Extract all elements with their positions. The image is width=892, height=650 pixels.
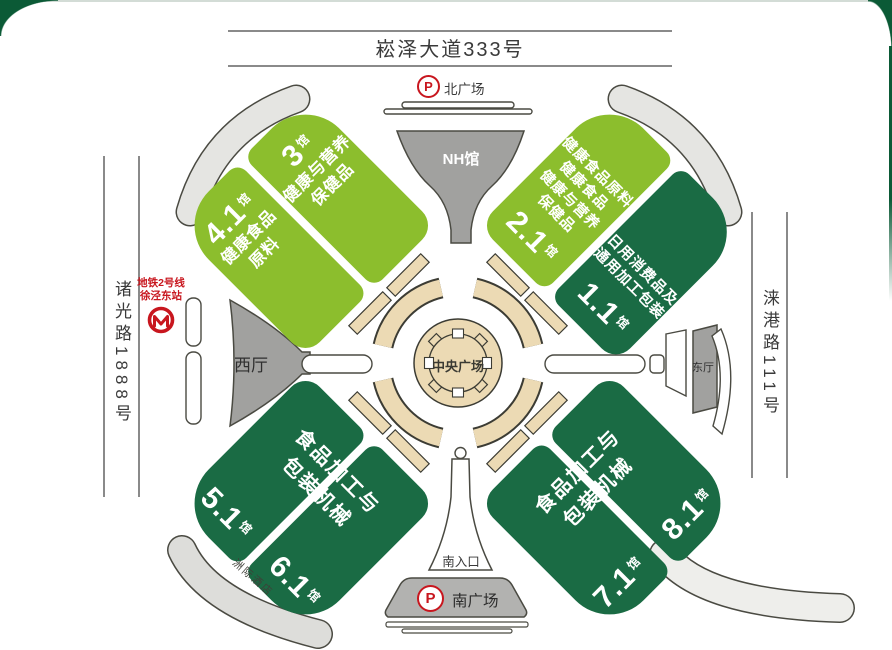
frame-corner-top-left [0, 0, 58, 36]
west-hall-label: 西厅 [224, 351, 278, 376]
north-walkway-bars [384, 102, 532, 114]
central-plaza-label: 中央广场 [418, 356, 498, 375]
venue-map: 4.1馆 健康食品 原料 3馆 健康与营养 保健品 健康食品原料 健康食品 健康… [0, 0, 892, 650]
shanghai-metro-icon [146, 305, 176, 335]
south-parking-icon: P [417, 585, 444, 612]
south-plaza-label: 南广场 [452, 589, 499, 611]
north-parking-icon: P [417, 75, 440, 98]
frame-top-hairline [0, 0, 892, 2]
metro-station-label: 地铁2号线 徐泾东站 [130, 277, 192, 303]
south-entrance-label: 南入口 [430, 551, 492, 570]
nh-hall-label: NH馆 [430, 148, 492, 169]
east-road-label: 涞港路111号 [752, 278, 787, 428]
north-road-label: 崧泽大道333号 [228, 33, 672, 62]
east-hall-label: 东厅 [687, 359, 719, 375]
north-plaza-label: 北广场 [444, 78, 485, 98]
frame-corner-top-right [868, 0, 892, 50]
